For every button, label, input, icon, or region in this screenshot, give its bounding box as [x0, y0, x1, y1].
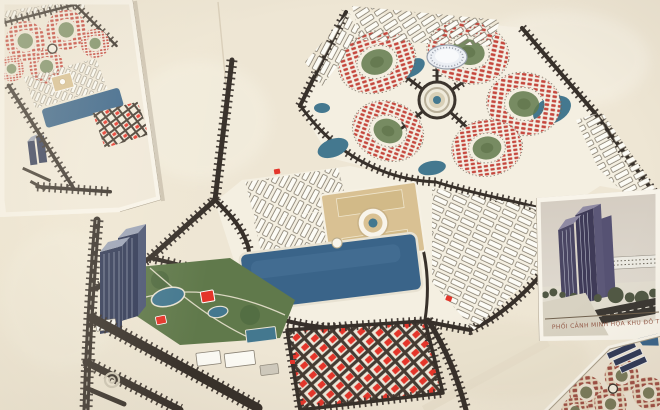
park-pavilion-small [155, 315, 166, 325]
central-roundabout [419, 82, 455, 118]
hall-gray [260, 363, 279, 375]
villa-grid-district [287, 321, 443, 410]
inset-roundabout [47, 44, 57, 54]
tower-rendering [526, 186, 660, 341]
masterplan-photo: PHỐI CẢNH MINH HỌA KHU ĐÔ THỊ [0, 0, 660, 410]
park-pavilion [200, 290, 215, 303]
hall-white-1 [196, 350, 221, 366]
masterplan-scene: PHỐI CẢNH MINH HỌA KHU ĐÔ THỊ [0, 0, 660, 410]
lake-pier [332, 238, 342, 248]
oval-hall [427, 45, 467, 69]
tower-rendering-inset: PHỐI CẢNH MINH HỌA KHU ĐÔ THỊ [526, 185, 660, 345]
fragment-roundabout [608, 384, 618, 394]
flower-pond [314, 103, 330, 113]
